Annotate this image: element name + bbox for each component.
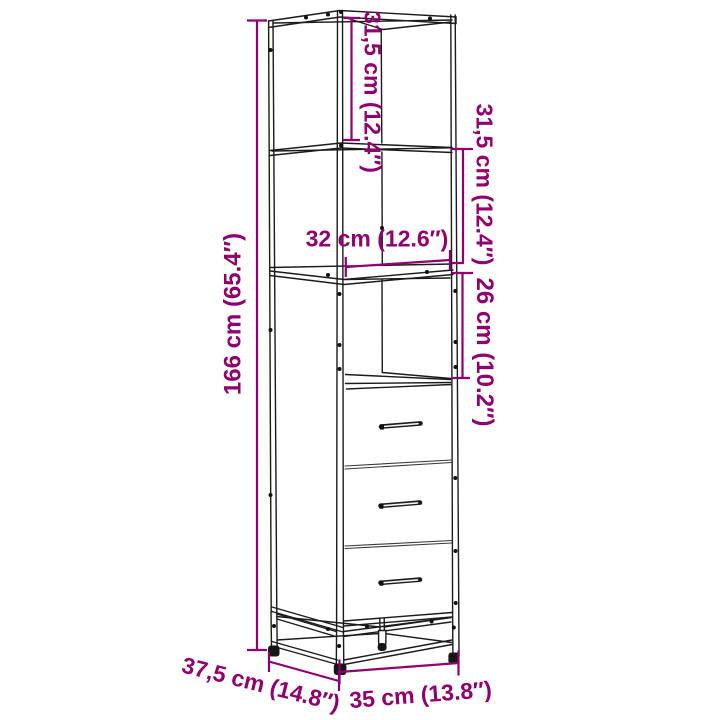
svg-text:31,5 cm (12.4″): 31,5 cm (12.4″) (360, 11, 386, 173)
svg-text:32 cm (12.6″): 32 cm (12.6″) (306, 226, 449, 252)
svg-text:37,5 cm (14.8″): 37,5 cm (14.8″) (179, 652, 342, 716)
svg-text:31,5 cm (12.4″): 31,5 cm (12.4″) (472, 104, 498, 266)
svg-text:166 cm (65.4″): 166 cm (65.4″) (220, 233, 247, 395)
svg-text:35 cm (13.8″): 35 cm (13.8″) (348, 676, 492, 713)
svg-text:26 cm (10.2″): 26 cm (10.2″) (471, 278, 498, 427)
